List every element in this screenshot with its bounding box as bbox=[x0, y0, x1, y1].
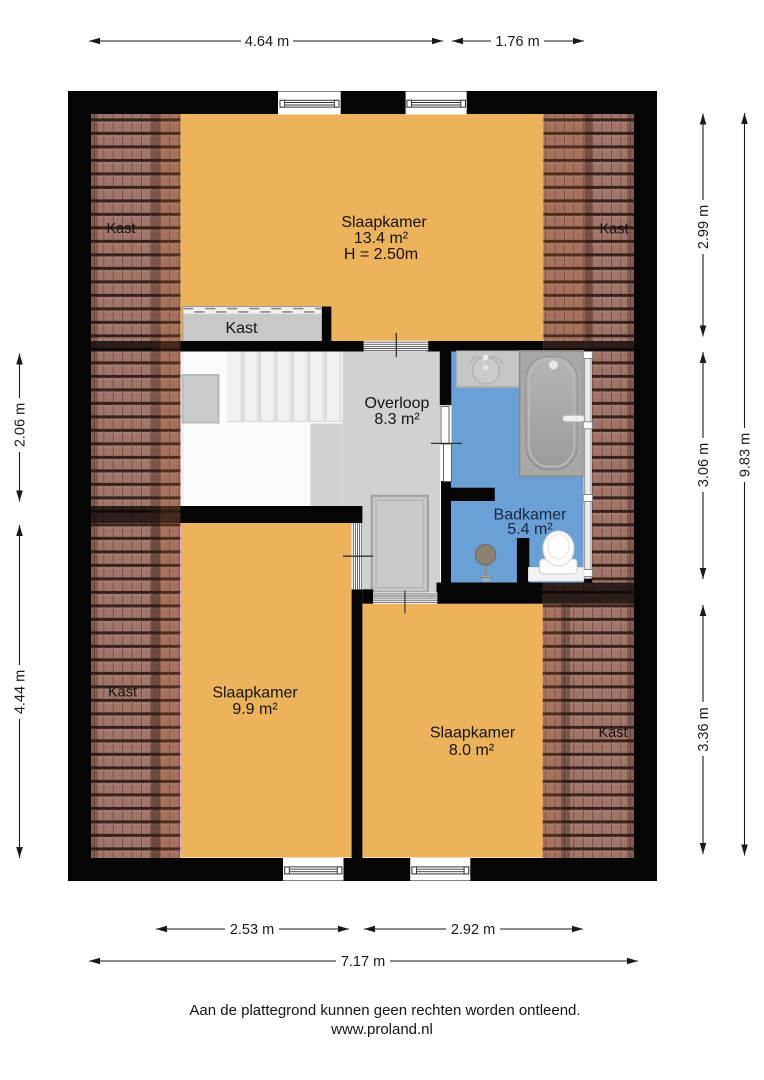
svg-text:Kast: Kast bbox=[106, 221, 135, 237]
svg-text:2.99 m: 2.99 m bbox=[696, 205, 712, 249]
svg-text:Slaapkamer: Slaapkamer bbox=[212, 685, 298, 702]
svg-text:Kast: Kast bbox=[599, 222, 628, 238]
svg-text:Kast: Kast bbox=[598, 725, 627, 741]
svg-text:5.4 m²: 5.4 m² bbox=[507, 521, 553, 538]
svg-text:8.0 m²: 8.0 m² bbox=[449, 742, 495, 759]
svg-text:9.83 m: 9.83 m bbox=[738, 433, 754, 477]
svg-text:Kast: Kast bbox=[108, 685, 137, 701]
svg-text:7.17 m: 7.17 m bbox=[341, 954, 385, 970]
svg-text:2.53 m: 2.53 m bbox=[230, 922, 274, 938]
svg-text:4.64 m: 4.64 m bbox=[245, 34, 289, 50]
svg-text:3.36 m: 3.36 m bbox=[696, 707, 712, 751]
svg-text:Kast: Kast bbox=[225, 320, 258, 337]
svg-text:13.4 m²: 13.4 m² bbox=[354, 230, 409, 247]
svg-text:9.9 m²: 9.9 m² bbox=[232, 701, 278, 718]
svg-text:1.76 m: 1.76 m bbox=[495, 34, 539, 50]
svg-text:4.44 m: 4.44 m bbox=[13, 670, 29, 714]
svg-text:2.06 m: 2.06 m bbox=[13, 403, 29, 447]
svg-text:Overloop: Overloop bbox=[365, 395, 430, 412]
svg-text:H = 2.50m: H = 2.50m bbox=[344, 246, 418, 263]
svg-text:2.92 m: 2.92 m bbox=[451, 922, 495, 938]
svg-text:Aan de plattegrond kunnen geen: Aan de plattegrond kunnen geen rechten w… bbox=[189, 1002, 580, 1019]
svg-text:Slaapkamer: Slaapkamer bbox=[430, 725, 516, 742]
svg-text:3.06 m: 3.06 m bbox=[696, 443, 712, 487]
svg-text:Slaapkamer: Slaapkamer bbox=[341, 214, 427, 231]
svg-text:8.3 m²: 8.3 m² bbox=[374, 411, 420, 428]
svg-text:www.proland.nl: www.proland.nl bbox=[330, 1021, 433, 1038]
